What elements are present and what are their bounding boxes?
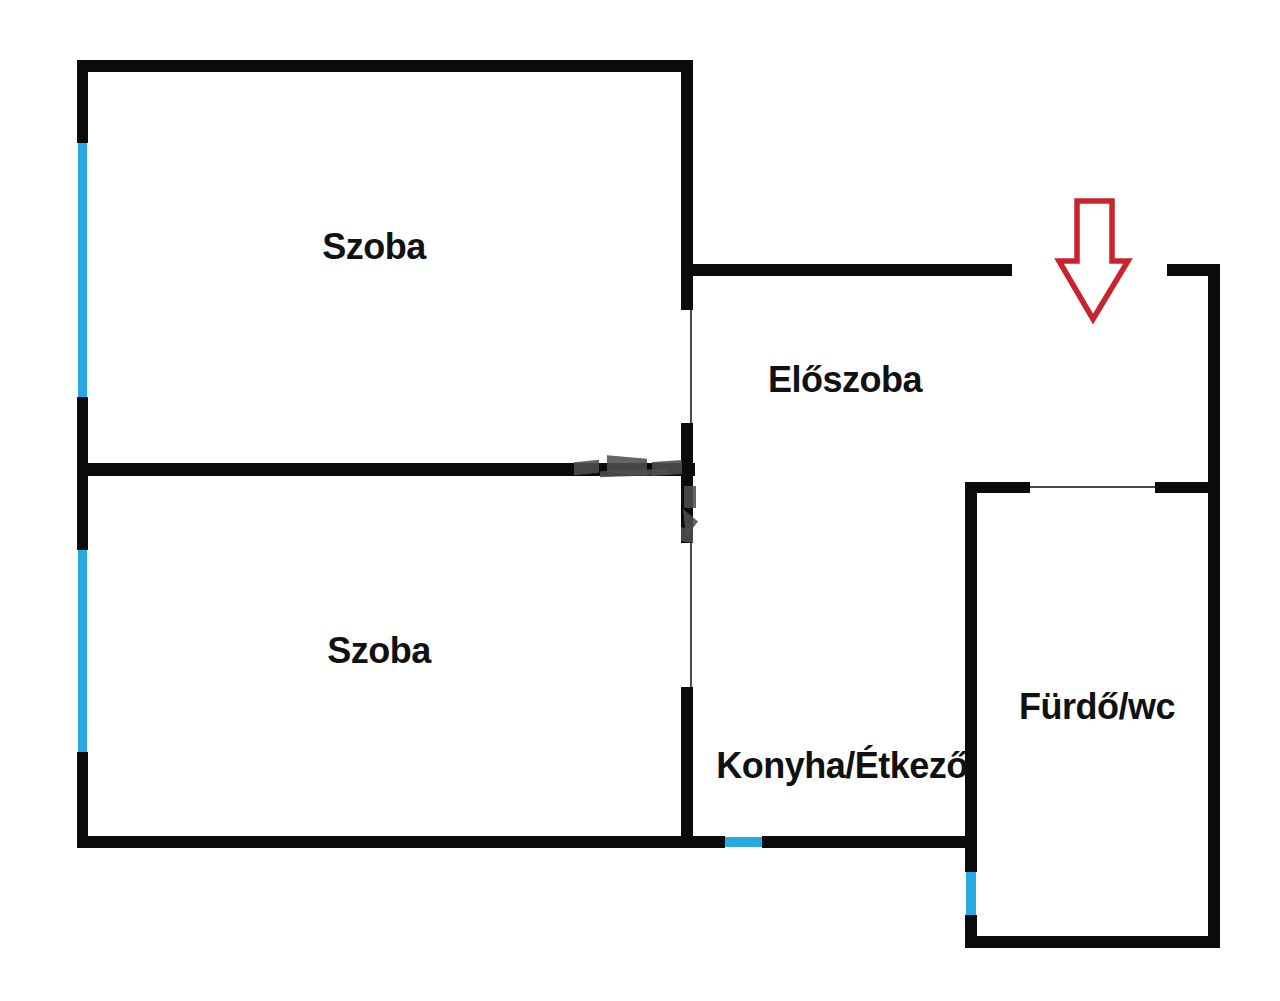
entrance-arrow-icon (0, 0, 1280, 1001)
hall-top-wall (687, 264, 1012, 276)
door-line-szoba-bottom (690, 543, 692, 687)
room-label-furdo: Fürdő/wc (1019, 686, 1175, 728)
left-wall-lower (77, 752, 88, 848)
entrance-arrow (1059, 201, 1128, 319)
watermark-fragment-4 (684, 486, 696, 508)
window-szoba-bottom (78, 550, 87, 752)
bottom-wall-left (77, 836, 725, 848)
bath-left-wall (965, 482, 977, 872)
bath-top-wall-right (1155, 482, 1208, 493)
left-wall-upper (77, 60, 88, 143)
door-line-szoba-top (690, 310, 692, 423)
right-outer-wall (1208, 264, 1220, 948)
room-label-szoba-bottom: Szoba (327, 630, 431, 672)
room-label-eloszoba: Előszoba (768, 359, 922, 401)
top-wall (77, 60, 693, 72)
watermark-fragment-0 (574, 460, 599, 476)
bath-bottom-wall (965, 936, 1220, 948)
room-label-konyha: Konyha/Étkező (716, 745, 968, 787)
window-konyha (725, 837, 762, 847)
door-line-furdo (1030, 486, 1155, 488)
watermark-fragment-6 (681, 527, 693, 543)
divider-wall-bottom (681, 687, 693, 848)
window-szoba-top (78, 143, 87, 397)
window-furdo (966, 872, 976, 915)
bottom-wall-right (762, 836, 977, 848)
floor-plan: Szoba Szoba Előszoba Konyha/Étkező Fürdő… (0, 0, 1280, 1001)
room-label-szoba-top: Szoba (322, 226, 426, 268)
